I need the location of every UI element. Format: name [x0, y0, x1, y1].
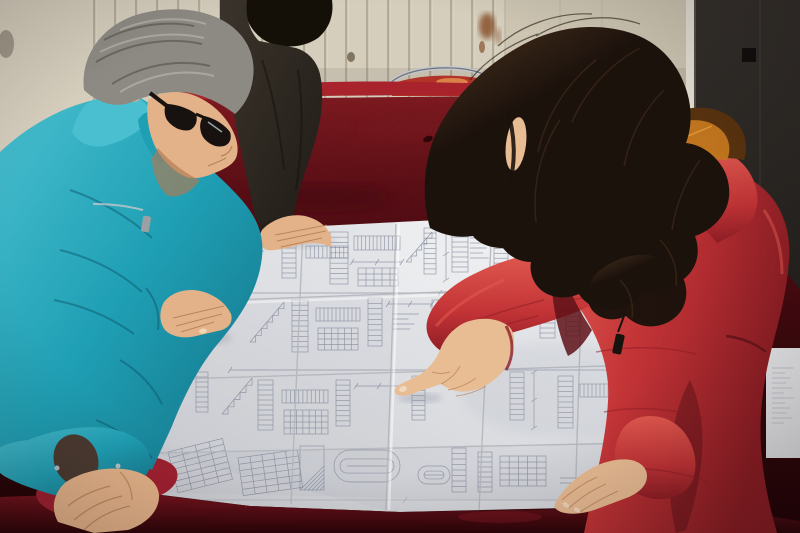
photo-people-reviewing-blueprint [0, 0, 800, 533]
vignette [0, 0, 800, 533]
